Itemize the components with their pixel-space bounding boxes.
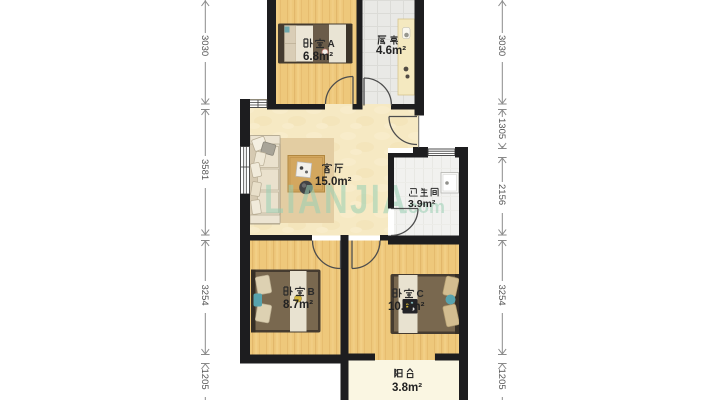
svg-text:3.8m²: 3.8m² — [392, 382, 422, 394]
svg-text:2156: 2156 — [496, 184, 507, 205]
svg-text:B: B — [308, 287, 315, 298]
svg-text:6.8m²: 6.8m² — [303, 51, 333, 63]
svg-text:1305: 1305 — [496, 118, 507, 139]
svg-text:3.9m²: 3.9m² — [408, 198, 436, 210]
svg-text:10.6m²: 10.6m² — [388, 301, 425, 313]
svg-text:8.7m²: 8.7m² — [283, 299, 313, 311]
svg-text:4.6m²: 4.6m² — [376, 45, 406, 57]
svg-text:3030: 3030 — [199, 35, 210, 56]
svg-text:3254: 3254 — [496, 285, 507, 306]
svg-text:1205: 1205 — [496, 369, 507, 390]
svg-text:C: C — [417, 289, 424, 300]
svg-text:3030: 3030 — [496, 35, 507, 56]
svg-text:A: A — [328, 39, 335, 50]
svg-text:3254: 3254 — [199, 285, 210, 306]
svg-text:15.0m²: 15.0m² — [315, 176, 352, 188]
svg-text:3581: 3581 — [199, 159, 210, 180]
svg-text:1205: 1205 — [199, 369, 210, 390]
